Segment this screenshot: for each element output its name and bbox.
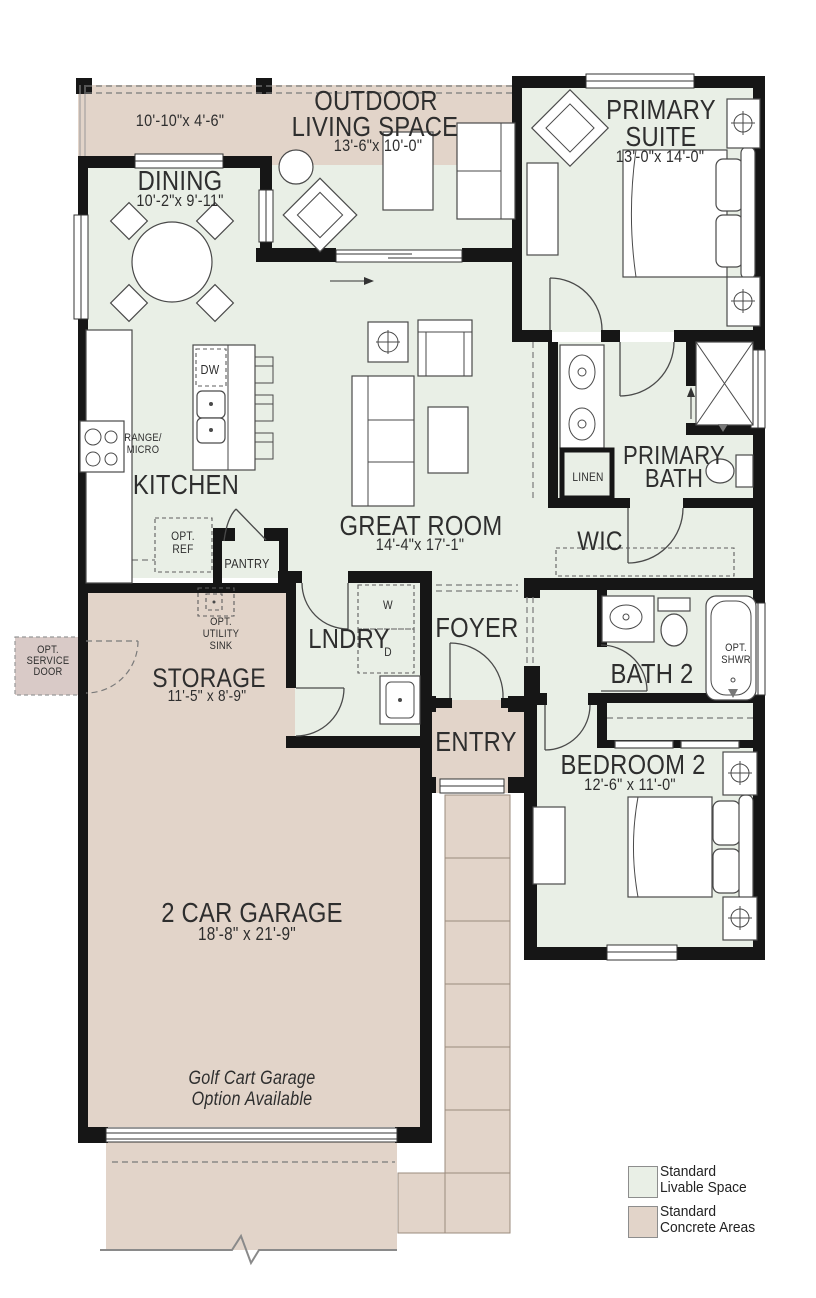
utility-sink-label-2: UTILITY xyxy=(203,629,240,640)
range-micro-icon xyxy=(80,421,124,472)
nightstand-icon xyxy=(727,99,760,148)
pillow-icon xyxy=(716,159,743,211)
legend-concrete-label-1: Standard xyxy=(660,1204,716,1219)
room-label-garage: 2 CAR GARAGE xyxy=(161,899,343,927)
patio-dimensions: 10'-10"x 4'-6" xyxy=(136,112,224,129)
pillow-icon xyxy=(716,215,743,267)
utility-sink-label-1: OPT. xyxy=(210,617,232,628)
pillow-icon xyxy=(713,849,740,893)
room-label-kitchen: KITCHEN xyxy=(133,471,239,499)
side-table-icon xyxy=(368,322,408,362)
vanity-icon xyxy=(602,596,654,642)
dishwasher-label: DW xyxy=(201,363,220,376)
nightstand-icon xyxy=(723,897,757,940)
nightstand-icon xyxy=(723,752,757,795)
dresser-icon xyxy=(533,807,565,884)
washer-label: W xyxy=(383,599,393,611)
legend-swatch-concrete xyxy=(628,1206,658,1238)
garage-door-icon xyxy=(106,1128,397,1142)
room-label-linen: LINEN xyxy=(572,471,603,483)
room-label-wic: WIC xyxy=(577,528,622,555)
garage-note-2: Option Available xyxy=(192,1090,313,1109)
dining-table-icon xyxy=(132,222,212,302)
room-label-laundry: LNDRY xyxy=(308,625,390,653)
great-room-dimensions: 14'-4"x 17'-1" xyxy=(376,536,464,553)
floor-plan: 10'-10"x 4'-6" OUTDOOR LIVING SPACE 13'-… xyxy=(0,0,816,1298)
armchair-icon xyxy=(418,320,472,376)
coffee-table-icon xyxy=(428,407,468,473)
patio-table-icon xyxy=(279,150,313,184)
dryer-label: D xyxy=(384,646,392,658)
toilet-icon xyxy=(658,598,690,646)
shower-icon xyxy=(687,342,753,432)
closet-door-panel xyxy=(615,741,673,748)
opt-shwr-label-1: OPT. xyxy=(725,643,747,654)
room-label-entry: ENTRY xyxy=(435,728,517,756)
sofa-icon xyxy=(352,376,414,506)
room-label-primary-bath-2: BATH xyxy=(645,465,703,491)
headboard-icon xyxy=(739,795,753,901)
pillow-icon xyxy=(713,801,740,845)
floor-plan-graphic xyxy=(0,0,816,1298)
opt-ref-label-2: REF xyxy=(172,543,193,555)
room-label-foyer: FOYER xyxy=(435,614,518,642)
legend-livable-label-1: Standard xyxy=(660,1164,716,1179)
opt-shwr-label-2: SHWR xyxy=(721,655,751,666)
legend-swatch-livable xyxy=(628,1166,658,1198)
headboard-icon xyxy=(741,147,755,279)
opt-ref-label-1: OPT. xyxy=(171,530,195,542)
dining-dimensions: 10'-2"x 9'-11" xyxy=(136,192,223,209)
dresser-icon xyxy=(527,163,558,255)
utility-sink-icon xyxy=(380,676,420,724)
range-micro-label-2: MICRO xyxy=(127,445,159,456)
outdoor-sofa-icon xyxy=(457,123,515,219)
nightstand-icon xyxy=(727,277,760,326)
closet-door-panel xyxy=(681,741,739,748)
service-door-label-3: DOOR xyxy=(33,667,62,678)
primary-suite-dimensions: 13'-0"x 14'-0" xyxy=(616,148,704,165)
garage-note-1: Golf Cart Garage xyxy=(188,1069,315,1088)
double-vanity-icon xyxy=(560,345,604,448)
room-label-bath2: BATH 2 xyxy=(610,660,693,688)
bedroom2-dimensions: 12'-6" x 11'-0" xyxy=(584,776,676,793)
outdoor-dimensions: 13'-6"x 10'-0" xyxy=(334,137,422,154)
storage-dimensions: 11'-5" x 8'-9" xyxy=(168,689,247,705)
utility-sink-label-3: SINK xyxy=(210,641,233,652)
range-micro-label-1: RANGE/ xyxy=(124,433,161,444)
room-label-primary-suite-1: PRIMARY xyxy=(606,96,716,124)
sliding-door-icon xyxy=(336,250,462,262)
legend-concrete-label-2: Concrete Areas xyxy=(660,1220,755,1235)
pantry-label: PANTRY xyxy=(224,557,269,570)
legend-livable-label-2: Livable Space xyxy=(660,1180,747,1195)
garage-dimensions: 18'-8" x 21'-9" xyxy=(198,925,296,943)
